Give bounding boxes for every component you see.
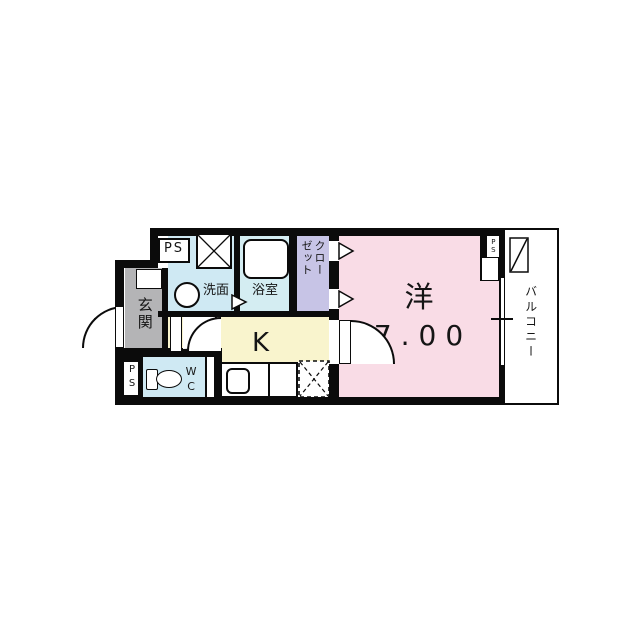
kitchen-counter-divider xyxy=(268,363,270,397)
shoe-cabinet-icon xyxy=(136,269,162,289)
wall-niche xyxy=(481,257,499,281)
washing-machine-space-icon xyxy=(196,233,232,269)
wall-entrance-washroom xyxy=(162,268,168,350)
room-door-leaf xyxy=(339,320,351,364)
entrance-label: 玄関 xyxy=(136,297,152,331)
closet-label: クローゼット xyxy=(300,240,326,286)
kitchen-sink-icon xyxy=(226,368,250,394)
floor-plan: PS PS PS 洗面 浴室 クローゼット 洋 7.00 K 玄関 xyxy=(0,0,640,640)
washroom-label: 洗面 xyxy=(197,284,235,298)
kitchen-label: K xyxy=(252,330,269,357)
wc-door-slit xyxy=(207,357,214,397)
western-room-floor xyxy=(339,236,499,397)
window-line-outer xyxy=(504,278,506,365)
entrance-door-leaf xyxy=(115,306,124,348)
hall-door-leaf xyxy=(170,316,182,352)
western-room-label: 洋 xyxy=(340,282,498,312)
toilet-bowl-icon xyxy=(156,370,182,388)
bathtub-icon xyxy=(243,239,289,279)
window-tick xyxy=(491,318,513,320)
pipe-space-room-label: PS xyxy=(489,238,496,254)
bathroom-label: 浴室 xyxy=(245,284,285,298)
closet-door-marker-top-icon xyxy=(338,242,355,260)
pipe-space-top-label: PS xyxy=(158,242,190,256)
refrigerator-space-icon xyxy=(298,360,330,398)
pipe-space-bottom-label: PS xyxy=(126,364,137,392)
balcony-label: バルコニー xyxy=(524,285,537,360)
balcony-partition-icon xyxy=(509,237,529,273)
bathroom-door-marker-icon xyxy=(231,294,248,311)
room-door-opening xyxy=(329,320,339,364)
wall-bathroom-closet xyxy=(289,236,297,317)
toilet-label: WC xyxy=(185,365,197,395)
